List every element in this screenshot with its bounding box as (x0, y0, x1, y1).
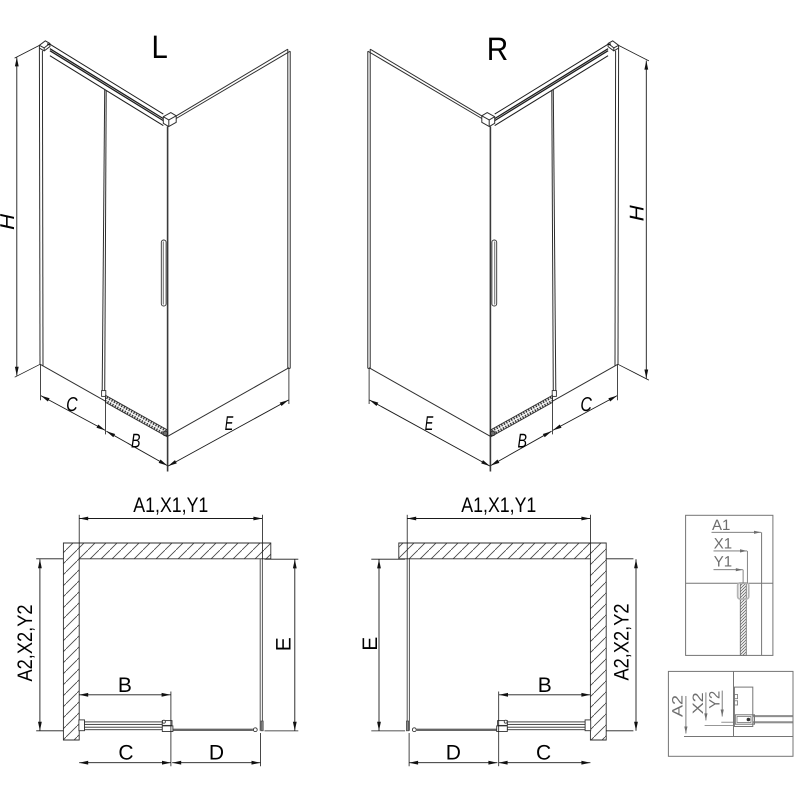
svg-text:Y1: Y1 (714, 554, 732, 571)
svg-text:R: R (487, 31, 509, 67)
svg-text:E: E (273, 637, 296, 651)
svg-text:E: E (425, 413, 434, 435)
svg-text:X1: X1 (714, 536, 732, 553)
svg-text:H: H (0, 213, 19, 230)
svg-text:X2: X2 (690, 692, 707, 714)
svg-text:D: D (209, 742, 224, 765)
svg-text:A1,X1,Y1: A1,X1,Y1 (133, 494, 208, 517)
svg-text:A2: A2 (670, 695, 687, 717)
svg-text:E: E (225, 413, 234, 435)
svg-text:C: C (536, 742, 551, 765)
svg-text:B: B (131, 430, 141, 452)
svg-text:C: C (66, 394, 78, 416)
svg-text:A1,X1,Y1: A1,X1,Y1 (461, 494, 536, 517)
svg-text:A1: A1 (712, 517, 730, 534)
svg-text:E: E (359, 637, 382, 651)
svg-text:B: B (118, 674, 132, 697)
svg-text:H: H (627, 205, 649, 222)
svg-text:D: D (446, 742, 461, 765)
svg-text:C: C (580, 394, 592, 416)
svg-text:A2,X2,Y2: A2,X2,Y2 (14, 605, 37, 682)
svg-text:A2,X2,Y2: A2,X2,Y2 (611, 604, 634, 681)
svg-text:B: B (538, 674, 552, 697)
svg-text:Y2: Y2 (707, 691, 724, 709)
svg-text:B: B (517, 430, 527, 452)
svg-text:C: C (118, 742, 133, 765)
svg-text:L: L (151, 29, 167, 65)
